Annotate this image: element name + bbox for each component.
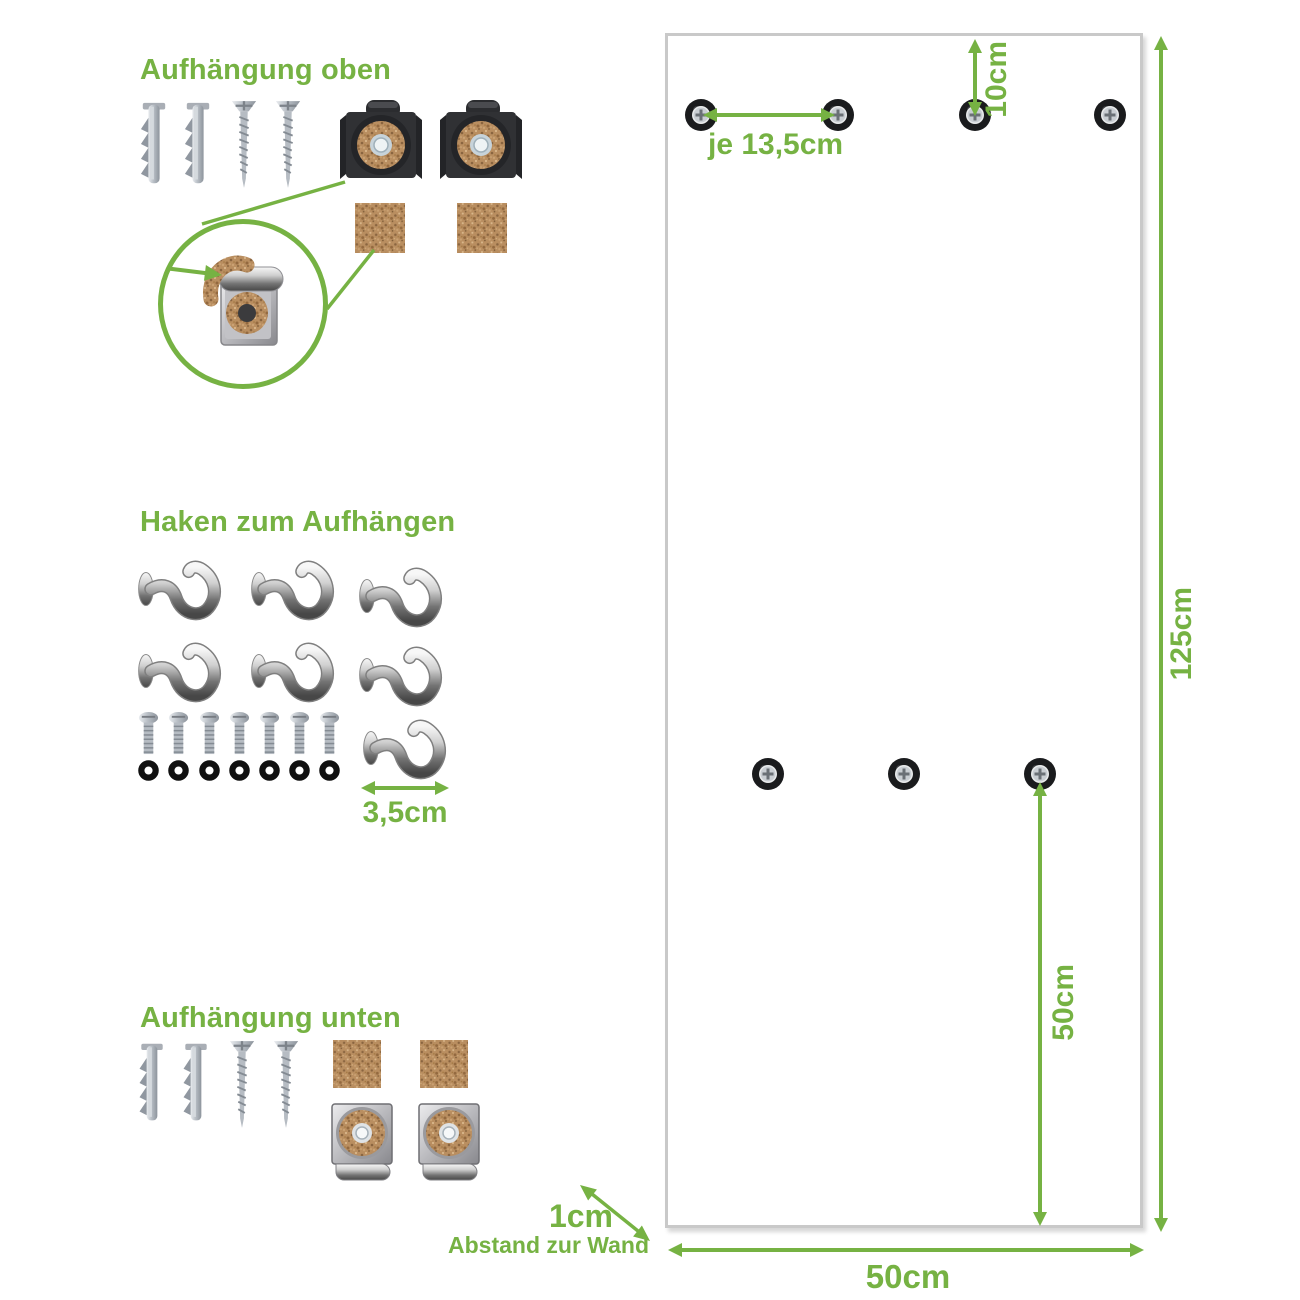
mounting-hole-icon (751, 757, 785, 791)
hook-icon (137, 635, 223, 707)
hook-icon (137, 553, 223, 625)
screw-icon (272, 1038, 300, 1130)
dimension-label-hook-width: 3,5cm (358, 796, 452, 830)
dimension-label-hole-spacing: je 13,5cm (708, 128, 843, 162)
mounting-hole-icon (887, 757, 921, 791)
bolt-icon (199, 711, 220, 757)
cork-pad-icon (420, 1040, 468, 1088)
section-title-top-mount: Aufhängung oben (140, 54, 391, 87)
washer-icon (229, 760, 250, 781)
dimension-label-wall-distance: 1cm (495, 1198, 613, 1235)
dimension-arrow-hook-width (357, 778, 453, 798)
washer-icon (199, 760, 220, 781)
dimension-label-height: 125cm (1164, 586, 1200, 682)
mounting-clip-top-icon (440, 100, 522, 186)
panel-outline (665, 33, 1143, 1228)
bolt-icon (319, 711, 340, 757)
bolt-icon (168, 711, 189, 757)
section-title-bottom-mount: Aufhängung unten (140, 1002, 401, 1035)
screw-icon (228, 1038, 256, 1130)
dimension-label-lower-hole: 50cm (1046, 956, 1082, 1048)
dimension-arrow-width (663, 1240, 1149, 1260)
dimension-label-width: 50cm (846, 1258, 970, 1296)
cork-pad-icon (457, 203, 507, 253)
mounting-diagram: Aufhängung oben Haken zum Aufhängen (0, 0, 1300, 1300)
dimension-arrow-hole-spacing (698, 105, 840, 125)
hook-icon (250, 635, 336, 707)
washer-icon (168, 760, 189, 781)
dimension-caption-wall-distance: Abstand zur Wand (448, 1232, 626, 1259)
mounting-clip-bottom-icon (417, 1102, 481, 1182)
detail-pointer-arrow (164, 258, 230, 286)
hook-icon (362, 712, 448, 784)
mounting-clip-bottom-icon (330, 1102, 394, 1182)
bolt-icon (259, 711, 280, 757)
wall-plug-icon (138, 1042, 166, 1124)
section-title-hooks: Haken zum Aufhängen (140, 506, 455, 539)
wall-plug-icon (182, 1042, 210, 1124)
cork-pad-icon (333, 1040, 381, 1088)
bolt-icon (229, 711, 250, 757)
washer-icon (259, 760, 280, 781)
mounting-hole-icon (1093, 98, 1127, 132)
hook-icon (250, 553, 336, 625)
bolt-icon (289, 711, 310, 757)
dimension-label-top-offset: 10cm (980, 42, 1014, 116)
hook-icon (358, 639, 444, 711)
washer-icon (138, 760, 159, 781)
hook-icon (358, 560, 444, 632)
washer-icon (289, 760, 310, 781)
washer-icon (319, 760, 340, 781)
bolt-icon (138, 711, 159, 757)
